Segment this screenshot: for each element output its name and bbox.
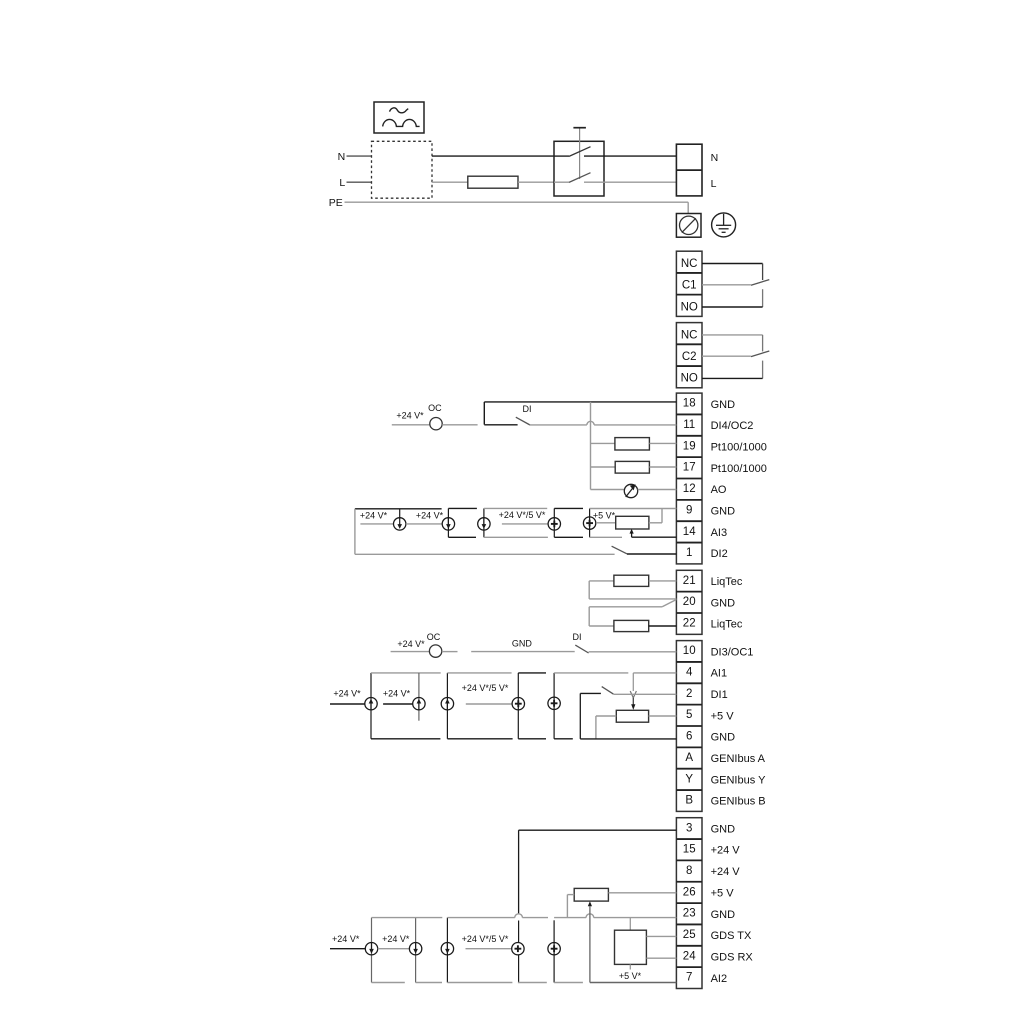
svg-text:GDS RX: GDS RX: [711, 951, 754, 963]
svg-text:+5 V*: +5 V*: [619, 971, 642, 981]
svg-text:11: 11: [683, 419, 695, 431]
svg-text:Pt100/1000: Pt100/1000: [711, 441, 767, 453]
svg-text:AI3: AI3: [711, 527, 728, 539]
svg-text:AO: AO: [711, 484, 727, 496]
svg-text:DI2: DI2: [711, 548, 728, 560]
svg-text:5: 5: [686, 709, 692, 721]
svg-text:17: 17: [683, 462, 696, 474]
svg-text:DI: DI: [573, 632, 582, 642]
svg-text:LiqTec: LiqTec: [711, 576, 743, 588]
svg-text:8: 8: [686, 865, 692, 877]
svg-text:15: 15: [683, 844, 696, 856]
svg-text:LiqTec: LiqTec: [711, 619, 743, 631]
svg-text:L: L: [711, 178, 717, 190]
svg-text:N: N: [711, 152, 719, 164]
svg-text:2: 2: [686, 688, 692, 700]
svg-text:GND: GND: [711, 823, 736, 835]
svg-text:+5 V: +5 V: [711, 887, 735, 899]
svg-text:7: 7: [686, 972, 692, 984]
svg-text:C1: C1: [682, 280, 697, 292]
svg-text:GENIbus Y: GENIbus Y: [711, 774, 766, 786]
svg-text:GDS TX: GDS TX: [711, 930, 752, 942]
svg-text:GND: GND: [711, 506, 736, 518]
svg-text:N: N: [338, 151, 346, 163]
svg-text:12: 12: [683, 483, 696, 495]
svg-text:GND: GND: [512, 639, 533, 649]
svg-text:22: 22: [683, 618, 696, 630]
svg-text:+24 V*: +24 V*: [397, 639, 425, 649]
svg-text:Pt100/1000: Pt100/1000: [711, 463, 767, 475]
svg-text:GENIbus A: GENIbus A: [711, 753, 766, 765]
svg-text:10: 10: [683, 645, 696, 657]
svg-text:3: 3: [686, 822, 692, 834]
svg-text:24: 24: [683, 950, 696, 962]
svg-text:+5 V: +5 V: [711, 710, 735, 722]
svg-text:NC: NC: [681, 329, 698, 341]
svg-text:+24 V: +24 V: [711, 866, 741, 878]
svg-text:DI1: DI1: [711, 689, 728, 701]
svg-text:+24 V: +24 V: [711, 845, 741, 857]
svg-text:20: 20: [683, 596, 696, 608]
svg-text:L: L: [339, 177, 345, 189]
svg-text:21: 21: [683, 575, 696, 587]
svg-text:DI4/OC2: DI4/OC2: [711, 420, 754, 432]
svg-text:NO: NO: [681, 373, 698, 385]
svg-text:PE: PE: [329, 197, 343, 209]
svg-text:6: 6: [686, 731, 692, 743]
svg-text:GND: GND: [711, 597, 736, 609]
svg-text:GENIbus B: GENIbus B: [711, 796, 766, 808]
svg-text:A: A: [685, 752, 693, 764]
svg-text:+24 V*: +24 V*: [382, 934, 410, 944]
svg-text:AI2: AI2: [711, 973, 728, 985]
svg-text:25: 25: [683, 929, 696, 941]
svg-text:+24 V*: +24 V*: [416, 511, 444, 521]
svg-text:GND: GND: [711, 732, 736, 744]
svg-text:14: 14: [683, 526, 696, 538]
svg-text:18: 18: [683, 398, 696, 410]
svg-text:AI1: AI1: [711, 668, 728, 680]
svg-text:4: 4: [686, 667, 693, 679]
svg-text:NO: NO: [681, 301, 698, 313]
svg-text:+24 V*/5 V*: +24 V*/5 V*: [462, 683, 509, 693]
svg-text:OC: OC: [428, 403, 442, 413]
svg-text:C2: C2: [682, 351, 697, 363]
svg-text:+24 V*/5 V*: +24 V*/5 V*: [462, 934, 509, 944]
svg-text:GND: GND: [711, 909, 736, 921]
svg-text:OC: OC: [427, 632, 441, 642]
svg-text:DI: DI: [523, 404, 532, 414]
svg-text:+24 V*: +24 V*: [332, 934, 360, 944]
svg-text:GND: GND: [711, 399, 736, 411]
svg-text:+5 V*: +5 V*: [593, 510, 616, 520]
svg-text:NC: NC: [681, 258, 698, 270]
svg-text:+24 V*: +24 V*: [333, 689, 361, 699]
svg-text:23: 23: [683, 908, 696, 920]
svg-text:B: B: [685, 795, 693, 807]
svg-text:19: 19: [683, 440, 696, 452]
svg-text:26: 26: [683, 886, 696, 898]
svg-text:+24 V*: +24 V*: [360, 511, 388, 521]
svg-text:+24 V*: +24 V*: [396, 410, 424, 420]
svg-text:+24 V*/5 V*: +24 V*/5 V*: [499, 510, 546, 520]
svg-text:DI3/OC1: DI3/OC1: [711, 646, 754, 658]
svg-text:Y: Y: [685, 773, 693, 785]
svg-text:+24 V*: +24 V*: [383, 689, 411, 699]
svg-text:9: 9: [686, 504, 692, 516]
svg-text:1: 1: [686, 547, 692, 559]
